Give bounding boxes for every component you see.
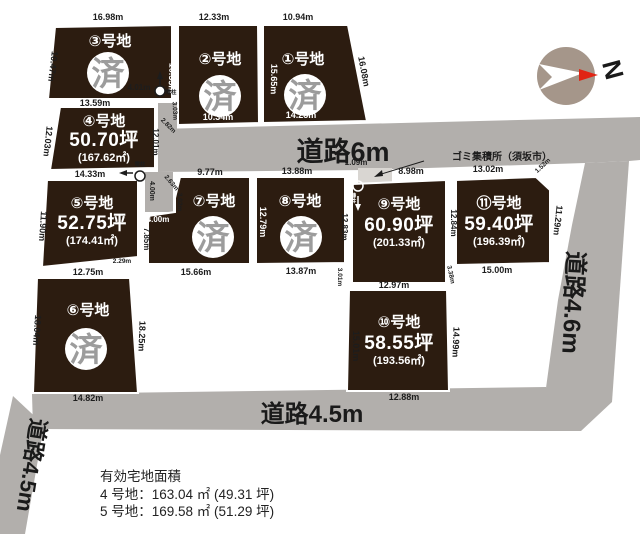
pole-label: 電柱 [165,88,177,96]
lot-3-dim-bottom: 13.59m [80,98,111,108]
pole-icon [135,171,145,181]
lot-10-dim-right: 14.99m [450,327,461,358]
notes-line-1: 4 号地：163.04 ㎡ (49.31 坪) [100,487,274,502]
lot-1-number: ①号地 [282,50,325,68]
lot-6-sold-mark: 済 [70,331,104,368]
garbage-station-label: ゴミ集積所（須坂市） [452,150,552,163]
lot-1-dim-left: 15.65m [269,64,280,95]
pole-label: 電柱 [134,160,146,168]
lot-4-area-m2: (167.62㎡) [78,150,130,164]
compass-north-label: N [596,57,630,83]
road-dim-3-03: 3.03m [171,102,179,121]
lot-8-sold-mark: 済 [285,219,319,256]
lot-8-dim-top: 13.88m [282,166,313,176]
lot-2-dim-left: 10.55m [166,63,177,94]
lot-5-dim-small: 2.29m [113,258,132,265]
lot-4-dim-bottom: 14.33m [75,169,106,179]
lot-map-canvas: ゴミ集積所（須坂市） 済 済 済 済 済 済 ①号地 ②号地 ③号地 ④号地 5… [0,0,640,534]
lot-1-dim-bottom: 14.23m [286,110,317,120]
lot-8-dim-right: 12.83m [340,213,349,240]
lot-4-number: ④号地 [83,112,126,130]
lot-8-dim-bottom: 13.87m [286,266,317,276]
lot-3-number: ③号地 [89,32,132,50]
pole-label: 電柱 [349,192,357,204]
lot-9-number: ⑨号地 [378,195,421,213]
lot-4-dim-right: 12.01m [151,128,160,155]
lot-8-number: ⑧号地 [279,192,322,210]
road-6m-surface [158,117,640,172]
lot-11-dim-right: 11.29m [551,205,564,236]
lot-5-number: ⑤号地 [71,194,114,212]
lot-10-dim-left: 15.01m [351,331,361,362]
lot-6-dim-right: 18.25m [136,321,147,352]
lot-9-area-m2: (201.33㎡) [373,235,425,249]
lot-6-dim-bottom: 14.82m [73,393,104,403]
lot-7-dim-edge: 3.02m [176,193,183,212]
lot-9-dim-top: 8.98m [398,166,424,176]
lot-5-area-tsubo: 52.75坪 [57,212,127,234]
lot-2-number: ②号地 [199,50,242,68]
lot-7-dim-notch-w: 4.00m [147,215,170,224]
lot-2-dim-top: 12.33m [199,12,230,22]
lot-5-dim-left: 11.90m [37,211,49,242]
lot-9-dim-bottom: 12.97m [379,280,410,290]
lot-2-sold-mark: 済 [204,78,238,115]
lot-10-area-tsubo: 58.55坪 [364,332,434,354]
road-4-6m-surface [546,161,629,431]
lot-7-sold-mark: 済 [197,219,231,256]
lot-7-dim-bottom: 15.66m [181,267,212,277]
lot-7-dim-notch-h: 4.00m [148,181,155,201]
lot-11-dim-top: 13.02m [473,164,504,174]
compass: N [537,47,630,105]
road-6m-label: 道路6m [296,136,389,167]
lot-6-dim-left: 18.04m [31,315,43,346]
lot-3-dim-top: 16.98m [93,12,124,22]
lot-5-dim-bottom: 12.75m [73,267,104,277]
lot-8-dim-small: 3.01m [336,268,343,287]
lot-11-dim-left: 12.84m [449,209,458,236]
lot-10-number: ⑩号地 [378,313,421,331]
lot-10-area-m2: (193.56㎡) [373,353,425,367]
lot-8-dim-left: 12.79m [258,207,268,238]
road-4-6m-label: 道路4.6m [556,250,589,354]
lot-9-area-tsubo: 60.90坪 [364,214,434,236]
lot-11-area-m2: (196.39㎡) [473,234,525,248]
lot-7-number: ⑦号地 [193,192,236,210]
lot-5-area-m2: (174.41㎡) [66,233,118,247]
road-4-5m-bottom-label: 道路4.5m [261,400,364,428]
lot-5-dim-right: 7.85m [142,228,151,251]
lot-10-dim-bottom: 12.88m [389,392,420,402]
lot-4-area-tsubo: 50.70坪 [69,129,139,151]
lot-3-sold-mark: 済 [92,55,126,92]
lot-1-sold-mark: 済 [289,77,323,114]
lot-11-area-tsubo: 59.40坪 [464,213,534,235]
lot-4-dim-left: 12.03m [41,126,54,157]
notes-block: 有効宅地面積 4 号地：163.04 ㎡ (49.31 坪) 5 号地：169.… [100,469,274,519]
lot-11-dim-bottom: 15.00m [482,265,513,275]
lot-6-number: ⑥号地 [67,301,110,319]
notes-line-2: 5 号地：169.58 ㎡ (51.29 坪) [100,504,274,519]
pole-icon [155,86,165,96]
lot-11-number: ⑪号地 [476,194,521,212]
lot-7-dim-top: 9.77m [197,167,223,177]
notes-title: 有効宅地面積 [100,469,181,484]
lot-2-dim-bottom: 10.34m [203,112,234,122]
subdivision-map: ゴミ集積所（須坂市） 済 済 済 済 済 済 ①号地 ②号地 ③号地 ④号地 5… [0,0,640,534]
road-dim-4-01: 4.01m [128,83,151,92]
lot-1-dim-top: 10.94m [283,12,314,22]
